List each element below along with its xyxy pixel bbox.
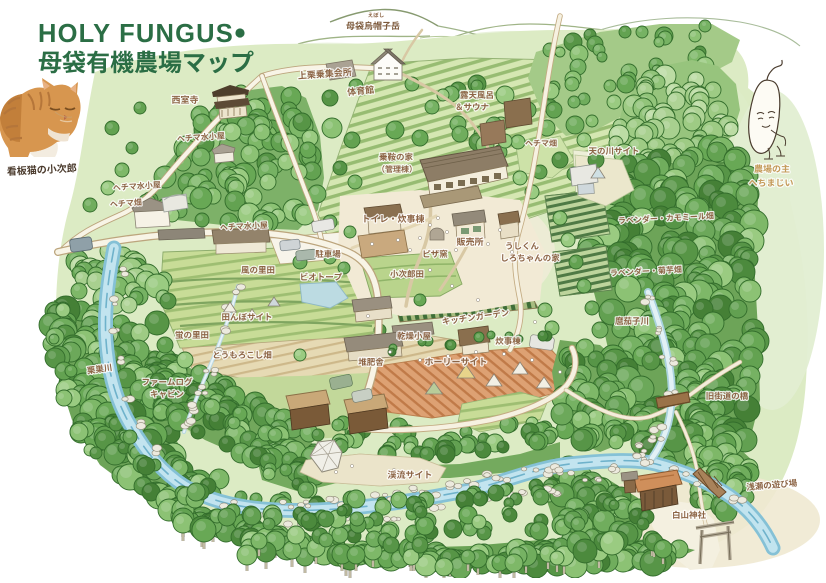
svg-text:HOLY FUNGUS: HOLY FUNGUS [38,20,234,48]
